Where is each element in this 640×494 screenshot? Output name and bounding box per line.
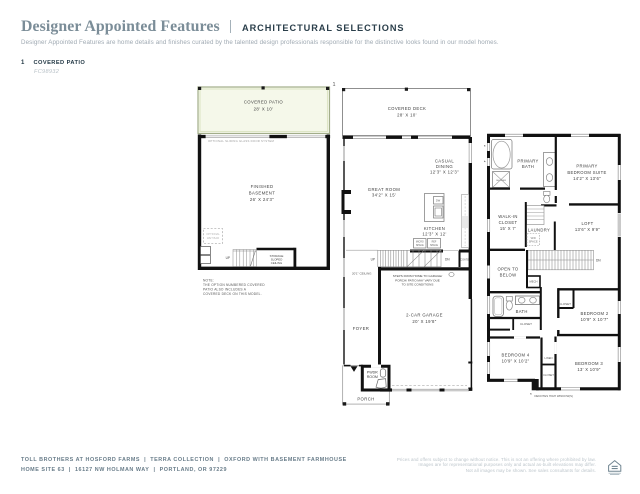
svg-text:WALK-IN: WALK-IN	[498, 214, 518, 219]
svg-text:COVERED DECK: COVERED DECK	[388, 106, 427, 111]
svg-text:OPTIONAL: OPTIONAL	[206, 232, 220, 236]
svg-text:TO SITE CONDITIONS: TO SITE CONDITIONS	[402, 283, 434, 287]
svg-text:NOTE:: NOTE:	[203, 279, 214, 283]
svg-text:BELOW: BELOW	[500, 273, 517, 278]
svg-text:COVERED DECK ON THIS MODEL.: COVERED DECK ON THIS MODEL.	[203, 292, 262, 296]
svg-text:THE OPTION NUMBERED COVERED: THE OPTION NUMBERED COVERED	[203, 283, 265, 287]
svg-text:PRIMARY: PRIMARY	[576, 163, 597, 168]
svg-text:BASEMENT: BASEMENT	[249, 191, 275, 196]
svg-text:CLOSET: CLOSET	[543, 373, 554, 377]
svg-text:26' X 24'3": 26' X 24'3"	[250, 197, 274, 202]
svg-text:DINING: DINING	[436, 164, 453, 169]
svg-text:13'6" X 9'9": 13'6" X 9'9"	[575, 227, 600, 232]
svg-text:BEDROOM 3: BEDROOM 3	[575, 361, 603, 366]
svg-text:BATH: BATH	[522, 164, 534, 169]
svg-text:UP: UP	[226, 256, 230, 260]
svg-text:LOFT: LOFT	[582, 221, 594, 226]
svg-text:COATS: COATS	[460, 259, 469, 262]
svg-text:1: 1	[332, 82, 335, 88]
svg-text:DW: DW	[436, 199, 441, 203]
svg-text:BEDROOM 2: BEDROOM 2	[580, 311, 608, 316]
svg-text:LINEN: LINEN	[545, 356, 553, 360]
svg-text:PWDR: PWDR	[367, 371, 378, 375]
svg-text:SPACE: SPACE	[529, 240, 538, 244]
svg-text:ROOM: ROOM	[367, 375, 378, 379]
svg-text:*: *	[484, 144, 486, 149]
svg-text:10'9" X 10'7": 10'9" X 10'7"	[581, 317, 609, 322]
svg-text:SPACE: SPACE	[430, 244, 438, 247]
svg-text:DENOTES HIGH WINDOW(S): DENOTES HIGH WINDOW(S)	[535, 394, 574, 398]
svg-text:CLOSET: CLOSET	[559, 302, 571, 306]
svg-text:20' X 19'8": 20' X 19'8"	[412, 319, 436, 324]
svg-text:DN: DN	[596, 259, 601, 263]
svg-text:BATH: BATH	[516, 309, 528, 314]
svg-text:OPTIONAL SLIDING GLASS DOOR SY: OPTIONAL SLIDING GLASS DOOR SYSTEM	[208, 139, 274, 143]
svg-text:WET BAR: WET BAR	[207, 236, 219, 240]
svg-text:10'9" X 10'2": 10'9" X 10'2"	[502, 359, 530, 364]
svg-text:GREAT ROOM: GREAT ROOM	[368, 187, 401, 192]
svg-text:OPEN TO: OPEN TO	[498, 267, 519, 272]
svg-text:12'3" X 12': 12'3" X 12'	[422, 232, 446, 237]
svg-text:PRIMARY: PRIMARY	[517, 158, 538, 163]
svg-text:SHOWER: SHOWER	[496, 180, 506, 182]
svg-text:COVERED PATIO: COVERED PATIO	[244, 100, 284, 105]
svg-text:KITCHEN: KITCHEN	[424, 226, 445, 231]
svg-text:CLOSET: CLOSET	[499, 220, 518, 225]
svg-text:*: *	[484, 160, 486, 165]
svg-text:CEILING: CEILING	[271, 261, 282, 265]
svg-text:34'2" X 15': 34'2" X 15'	[372, 193, 396, 198]
svg-text:PATIO ALSO INCLUDES A: PATIO ALSO INCLUDES A	[203, 288, 247, 292]
svg-text:BEDROOM SUITE: BEDROOM SUITE	[567, 170, 606, 175]
svg-text:W/D: W/D	[531, 236, 536, 240]
svg-text:LAUNDRY: LAUNDRY	[528, 228, 550, 233]
svg-text:*: *	[530, 392, 532, 397]
svg-text:FOYER: FOYER	[353, 326, 370, 331]
svg-text:15' X 7': 15' X 7'	[500, 226, 516, 231]
svg-text:28' X 10': 28' X 10'	[254, 107, 274, 112]
svg-text:12'3" X 12'3": 12'3" X 12'3"	[430, 170, 459, 175]
svg-text:14'2" X 13'6": 14'2" X 13'6"	[573, 176, 601, 181]
svg-text:20'1" CEILING: 20'1" CEILING	[352, 272, 372, 276]
svg-text:MECH: MECH	[530, 280, 538, 284]
svg-text:BEDROOM 4: BEDROOM 4	[501, 353, 529, 358]
svg-text:2-CAR GARAGE: 2-CAR GARAGE	[406, 313, 443, 318]
svg-text:SPACE: SPACE	[416, 244, 424, 247]
svg-text:FINISHED: FINISHED	[251, 184, 274, 189]
svg-text:UP: UP	[371, 258, 375, 262]
svg-text:28' X 10': 28' X 10'	[397, 113, 417, 118]
svg-text:13' X 10'9": 13' X 10'9"	[577, 367, 601, 372]
svg-text:DN: DN	[445, 258, 450, 262]
svg-text:PORCH: PORCH	[357, 397, 374, 402]
svg-text:CASUAL: CASUAL	[435, 159, 455, 164]
svg-text:CLOSET: CLOSET	[520, 322, 532, 326]
